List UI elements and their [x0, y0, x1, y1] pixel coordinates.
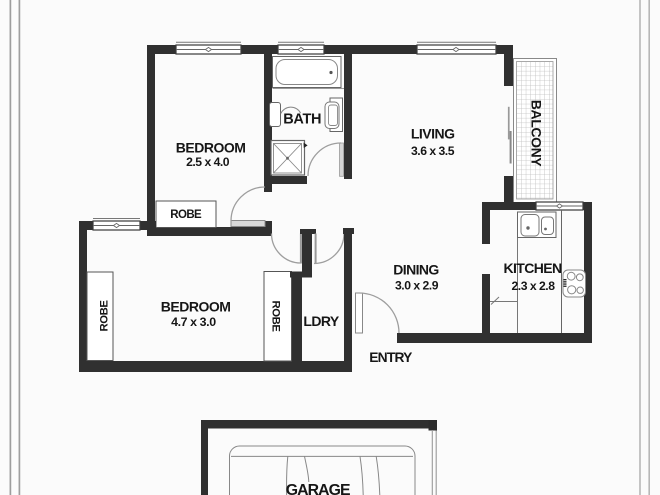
svg-text:ROBE: ROBE [99, 300, 111, 332]
svg-text:BATH: BATH [283, 112, 321, 128]
svg-text:3.6 x 3.5: 3.6 x 3.5 [411, 144, 455, 158]
svg-text:2.5 x 4.0: 2.5 x 4.0 [186, 155, 230, 169]
svg-text:LDRY: LDRY [303, 313, 339, 329]
svg-text:DINING: DINING [393, 262, 439, 278]
svg-text:2.3 x 2.8: 2.3 x 2.8 [512, 279, 556, 293]
svg-text:ENTRY: ENTRY [369, 350, 412, 365]
svg-text:4.7 x 3.0: 4.7 x 3.0 [171, 315, 216, 329]
svg-text:GARAGE: GARAGE [286, 482, 350, 495]
svg-text:LIVING: LIVING [411, 126, 455, 142]
svg-text:ROBE: ROBE [170, 209, 202, 221]
svg-text:BALCONY: BALCONY [529, 100, 545, 167]
svg-text:BEDROOM: BEDROOM [176, 139, 246, 155]
svg-text:KITCHEN: KITCHEN [503, 260, 562, 276]
svg-text:BEDROOM: BEDROOM [161, 299, 231, 315]
svg-text:3.0 x 2.9: 3.0 x 2.9 [395, 278, 439, 292]
svg-text:ROBE: ROBE [270, 300, 282, 332]
